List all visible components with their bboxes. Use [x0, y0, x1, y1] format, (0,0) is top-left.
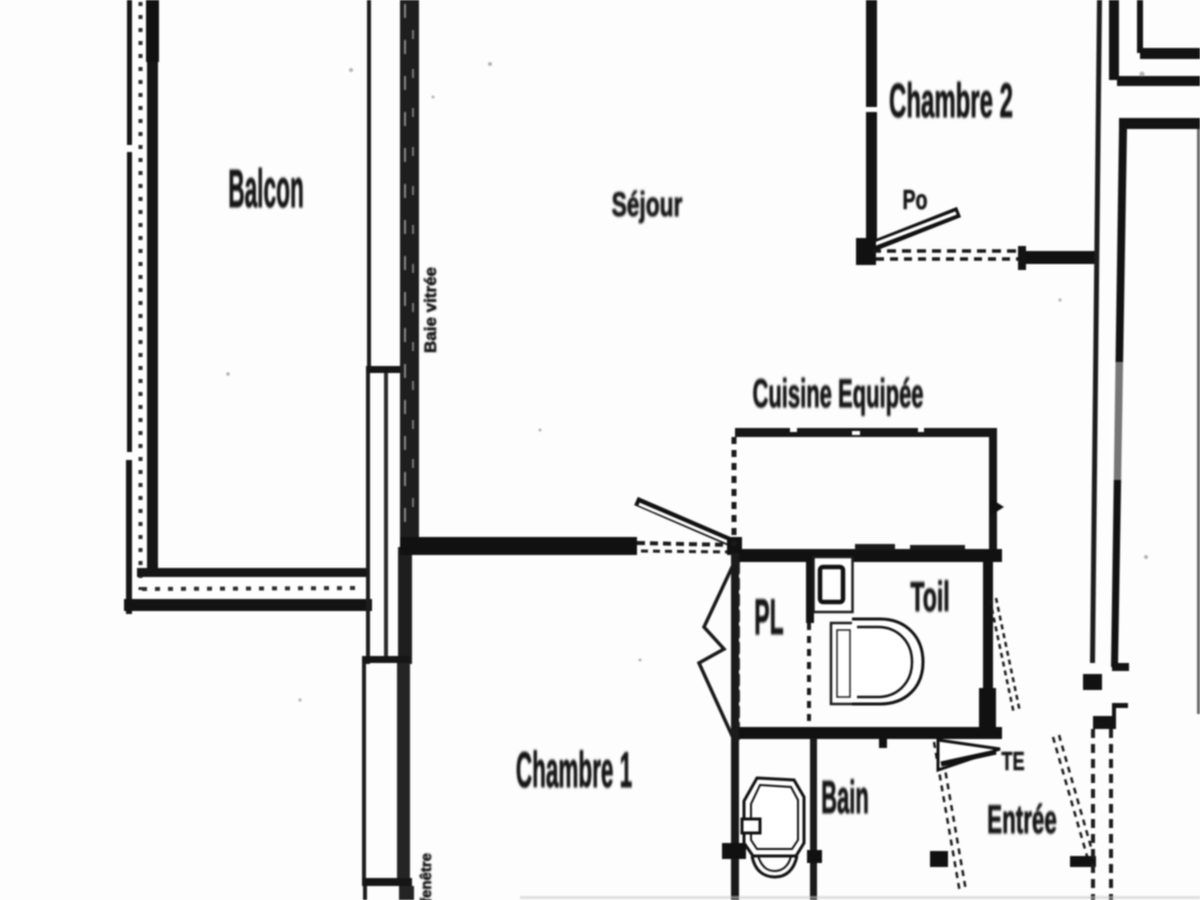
svg-text:Toil: Toil [910, 574, 949, 621]
svg-text:TE: TE [1001, 747, 1024, 776]
svg-text:Séjour: Séjour [612, 187, 683, 225]
svg-text:Bain: Bain [821, 771, 869, 823]
svg-text:Po: Po [902, 185, 927, 216]
svg-text:Baie vitrée: Baie vitrée [421, 267, 440, 353]
svg-text:Chambre 2: Chambre 2 [889, 75, 1013, 128]
svg-text:Entrée: Entrée [987, 797, 1057, 841]
svg-text:Chambre 1: Chambre 1 [516, 743, 632, 798]
svg-text:fenêtre: fenêtre [418, 853, 435, 900]
svg-text:PL: PL [754, 590, 783, 645]
svg-text:Cuisine Equipée: Cuisine Equipée [752, 371, 923, 416]
svg-text:Balcon: Balcon [228, 159, 304, 219]
